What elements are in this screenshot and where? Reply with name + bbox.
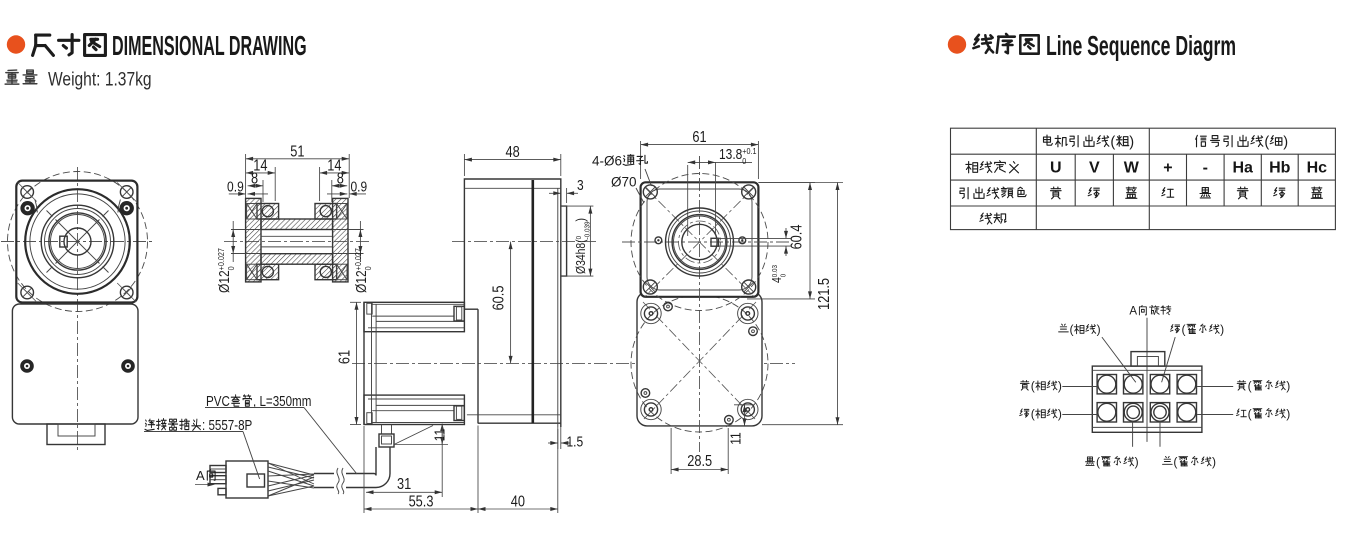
svg-text:(: ( — [1264, 135, 1269, 151]
svg-text:(: ( — [1031, 407, 1035, 421]
svg-text:11: 11 — [431, 429, 448, 441]
svg-text:+0.1: +0.1 — [742, 147, 756, 156]
svg-text:(: ( — [1248, 379, 1252, 393]
svg-text:Ha: Ha — [1232, 160, 1253, 177]
svg-text:): ) — [1286, 407, 1290, 421]
svg-text:(: ( — [1096, 455, 1100, 469]
svg-text:(: ( — [1070, 323, 1074, 337]
svg-text:8: 8 — [251, 170, 258, 188]
svg-text:): ) — [1129, 135, 1134, 151]
svg-text:): ) — [574, 218, 588, 222]
svg-text:55.3: 55.3 — [409, 493, 434, 511]
svg-text:(: ( — [1031, 379, 1035, 393]
svg-text:): ) — [1212, 455, 1216, 469]
svg-text:0.9: 0.9 — [227, 178, 244, 195]
svg-text:+: + — [1163, 160, 1172, 177]
svg-text:Hc: Hc — [1307, 160, 1328, 177]
svg-text:V: V — [1089, 160, 1100, 177]
svg-text:31: 31 — [397, 476, 411, 494]
svg-text:121.5: 121.5 — [816, 278, 834, 310]
svg-text:40: 40 — [511, 493, 525, 511]
svg-text:13.8: 13.8 — [719, 146, 742, 163]
svg-text:Line Sequence Diagrm: Line Sequence Diagrm — [1046, 30, 1236, 61]
svg-text:+0.027: +0.027 — [217, 248, 226, 270]
svg-text:): ) — [1283, 135, 1288, 151]
svg-text:0: 0 — [780, 273, 787, 277]
svg-text:+0.027: +0.027 — [354, 248, 363, 270]
svg-text:0: 0 — [364, 266, 373, 270]
svg-text:U: U — [1050, 160, 1062, 177]
svg-text:(: ( — [1182, 323, 1186, 337]
svg-text:(: ( — [1110, 135, 1115, 151]
svg-text:): ) — [1058, 379, 1062, 393]
svg-text:): ) — [1058, 407, 1062, 421]
svg-text:): ) — [1135, 455, 1139, 469]
svg-text:8: 8 — [337, 170, 344, 188]
svg-text:61: 61 — [336, 350, 354, 364]
svg-text:Ø34h8(: Ø34h8( — [574, 239, 588, 274]
svg-text:Hb: Hb — [1269, 160, 1291, 177]
svg-text:0: 0 — [742, 156, 746, 165]
svg-text:(: ( — [1173, 455, 1177, 469]
svg-text:-: - — [1203, 160, 1208, 177]
svg-text:Ø12: Ø12 — [353, 270, 370, 293]
svg-text:Weight: 1.37kg: Weight: 1.37kg — [48, 68, 152, 90]
svg-text:): ) — [1097, 323, 1101, 337]
svg-text:0.03: 0.03 — [772, 265, 779, 278]
svg-text:A: A — [1129, 306, 1137, 318]
svg-text:4-Ø6: 4-Ø6 — [592, 153, 622, 168]
svg-text:60.5: 60.5 — [490, 286, 508, 311]
svg-text:51: 51 — [290, 143, 304, 161]
svg-text:): ) — [1220, 323, 1224, 337]
svg-text:W: W — [1124, 160, 1140, 177]
svg-text:(: ( — [1248, 407, 1252, 421]
svg-text:): ) — [1286, 379, 1290, 393]
svg-text:11: 11 — [727, 432, 744, 444]
svg-text:0: 0 — [576, 236, 583, 240]
svg-text:0.9: 0.9 — [350, 178, 367, 195]
svg-text:28.5: 28.5 — [687, 453, 712, 471]
svg-text:A: A — [196, 468, 205, 483]
svg-text:3: 3 — [577, 177, 584, 194]
svg-text:0: 0 — [227, 266, 236, 270]
svg-text:61: 61 — [692, 129, 706, 147]
svg-text:DIMENSIONAL DRAWING: DIMENSIONAL DRAWING — [112, 29, 307, 61]
svg-text:Ø12: Ø12 — [216, 270, 233, 293]
svg-text:48: 48 — [505, 144, 519, 162]
svg-text:1.5: 1.5 — [567, 433, 584, 450]
svg-text:-0.039: -0.039 — [584, 221, 591, 239]
svg-text:Ø70: Ø70 — [611, 174, 637, 189]
